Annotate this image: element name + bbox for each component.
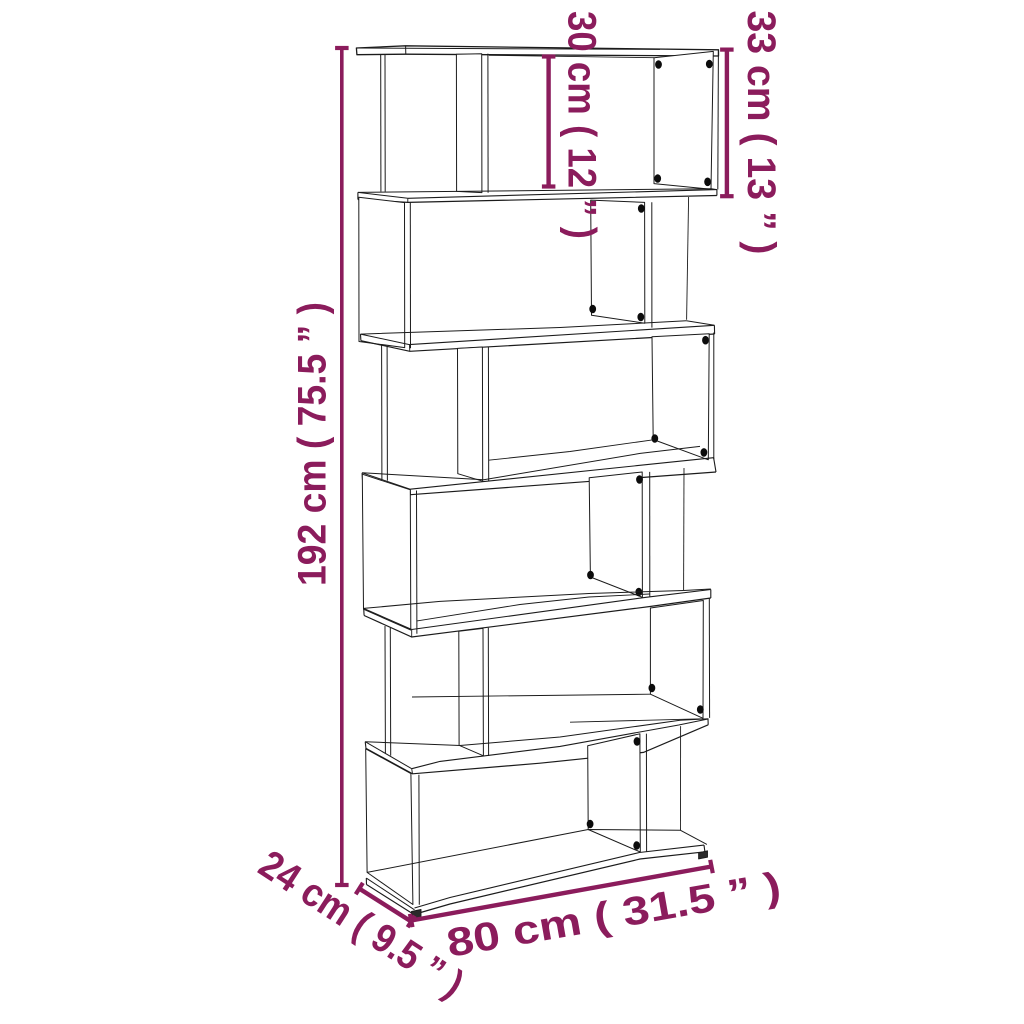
svg-text:192 cm ( 75.5 ” ): 192 cm ( 75.5 ” ) — [291, 302, 335, 586]
svg-text:30 cm ( 12 ” ): 30 cm ( 12 ” ) — [560, 11, 604, 239]
svg-text:33 cm ( 13 ” ): 33 cm ( 13 ” ) — [739, 11, 783, 255]
